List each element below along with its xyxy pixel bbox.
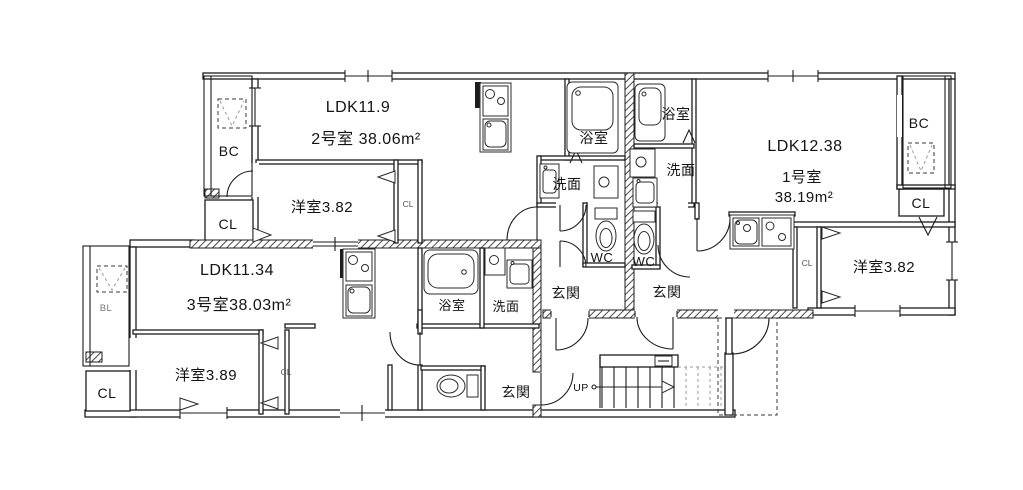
unit3-entrance-label: 玄関	[502, 384, 531, 400]
unit1-toilet-icon	[633, 211, 655, 254]
unit2-kitchen-icon	[480, 83, 511, 152]
unit2-ldk-label: LDK11.9	[326, 99, 391, 116]
unit2-vanity-icon	[594, 166, 618, 198]
unit1-bedroom-label: 洋室3.82	[853, 259, 915, 276]
unit1-washer-icon	[633, 178, 657, 207]
unit1-balcony-label: BC	[909, 115, 929, 131]
unit3-bathtub-icon	[424, 250, 478, 294]
unit1-bathtub-icon	[635, 84, 665, 141]
unit1-bath-label: 浴室	[662, 106, 691, 122]
unit3-bedroom-label: 洋室3.89	[175, 367, 237, 384]
unit3-balcony-drying-mark	[97, 266, 127, 292]
unit3-ldk-label: LDK11.34	[200, 262, 274, 279]
unit3-closet-label: CL	[98, 385, 117, 401]
unit3-closet-small-label: CL	[281, 367, 292, 377]
unit1-closet-label: CL	[912, 195, 931, 211]
unit3-washroom-label: 洗面	[492, 299, 519, 314]
unit2-toilet-icon	[595, 208, 617, 251]
unit1-kitchen-icon	[730, 215, 794, 249]
unit1-entrance-label: 玄関	[653, 284, 682, 300]
building-entrance-door-leaf	[726, 318, 732, 354]
unit3-name-area-label: 3号室38.03m²	[187, 296, 292, 314]
floor-plan-drawing: LDK11.9 2号室 38.06m² 洋室3.82 CL CL BC 浴室 洗…	[0, 0, 1023, 490]
unit2-balcony-label: BC	[219, 143, 239, 159]
unit3-kitchen-icon	[343, 249, 375, 318]
unit1-washroom-label: 洗面	[667, 162, 696, 178]
stairs	[592, 355, 723, 408]
unit2-closet-label: CL	[219, 216, 238, 232]
unit2-closet-small-label: CL	[403, 199, 414, 209]
unit2-washroom-label: 洗面	[553, 176, 582, 192]
unit1-balcony-drying-mark	[908, 143, 934, 173]
labels: LDK11.9 2号室 38.06m² 洋室3.82 CL CL BC 浴室 洗…	[98, 99, 931, 401]
unit2-bedroom-label: 洋室3.82	[291, 199, 353, 216]
unit2-name-area-label: 2号室 38.06m²	[311, 130, 421, 148]
unit3-washer-icon	[507, 260, 532, 288]
unit1-balcony-outline	[903, 76, 951, 188]
unit2-balcony-drying-mark	[218, 99, 246, 128]
unit2-toilet-label: WC	[591, 250, 614, 265]
unit1-name-label: 1号室	[782, 169, 822, 186]
unit3-toilet-icon	[437, 375, 478, 397]
stair-up-start-mark	[592, 385, 596, 389]
floor-plan-page: LDK11.9 2号室 38.06m² 洋室3.82 CL CL BC 浴室 洗…	[0, 0, 1023, 490]
unit1-vanity-icon	[630, 149, 655, 177]
unit2-entrance-label: 玄関	[552, 285, 581, 301]
unit2-bath-label: 浴室	[580, 130, 609, 146]
stair-up-arrowhead	[662, 381, 674, 393]
unit1-closet-small-label: CL	[802, 258, 813, 268]
building-entrance-door-swing	[732, 318, 769, 354]
unit1-area-label: 38.19m²	[775, 189, 834, 206]
unit1-toilet-label: WC	[633, 254, 656, 269]
unit3-bath-label: 浴室	[438, 298, 465, 313]
unit3-vanity-icon	[485, 248, 505, 275]
unit3-balcony-label: BL	[100, 303, 113, 314]
stairs-up-label: UP	[573, 382, 589, 394]
unit1-ldk-label: LDK12.38	[767, 138, 842, 155]
